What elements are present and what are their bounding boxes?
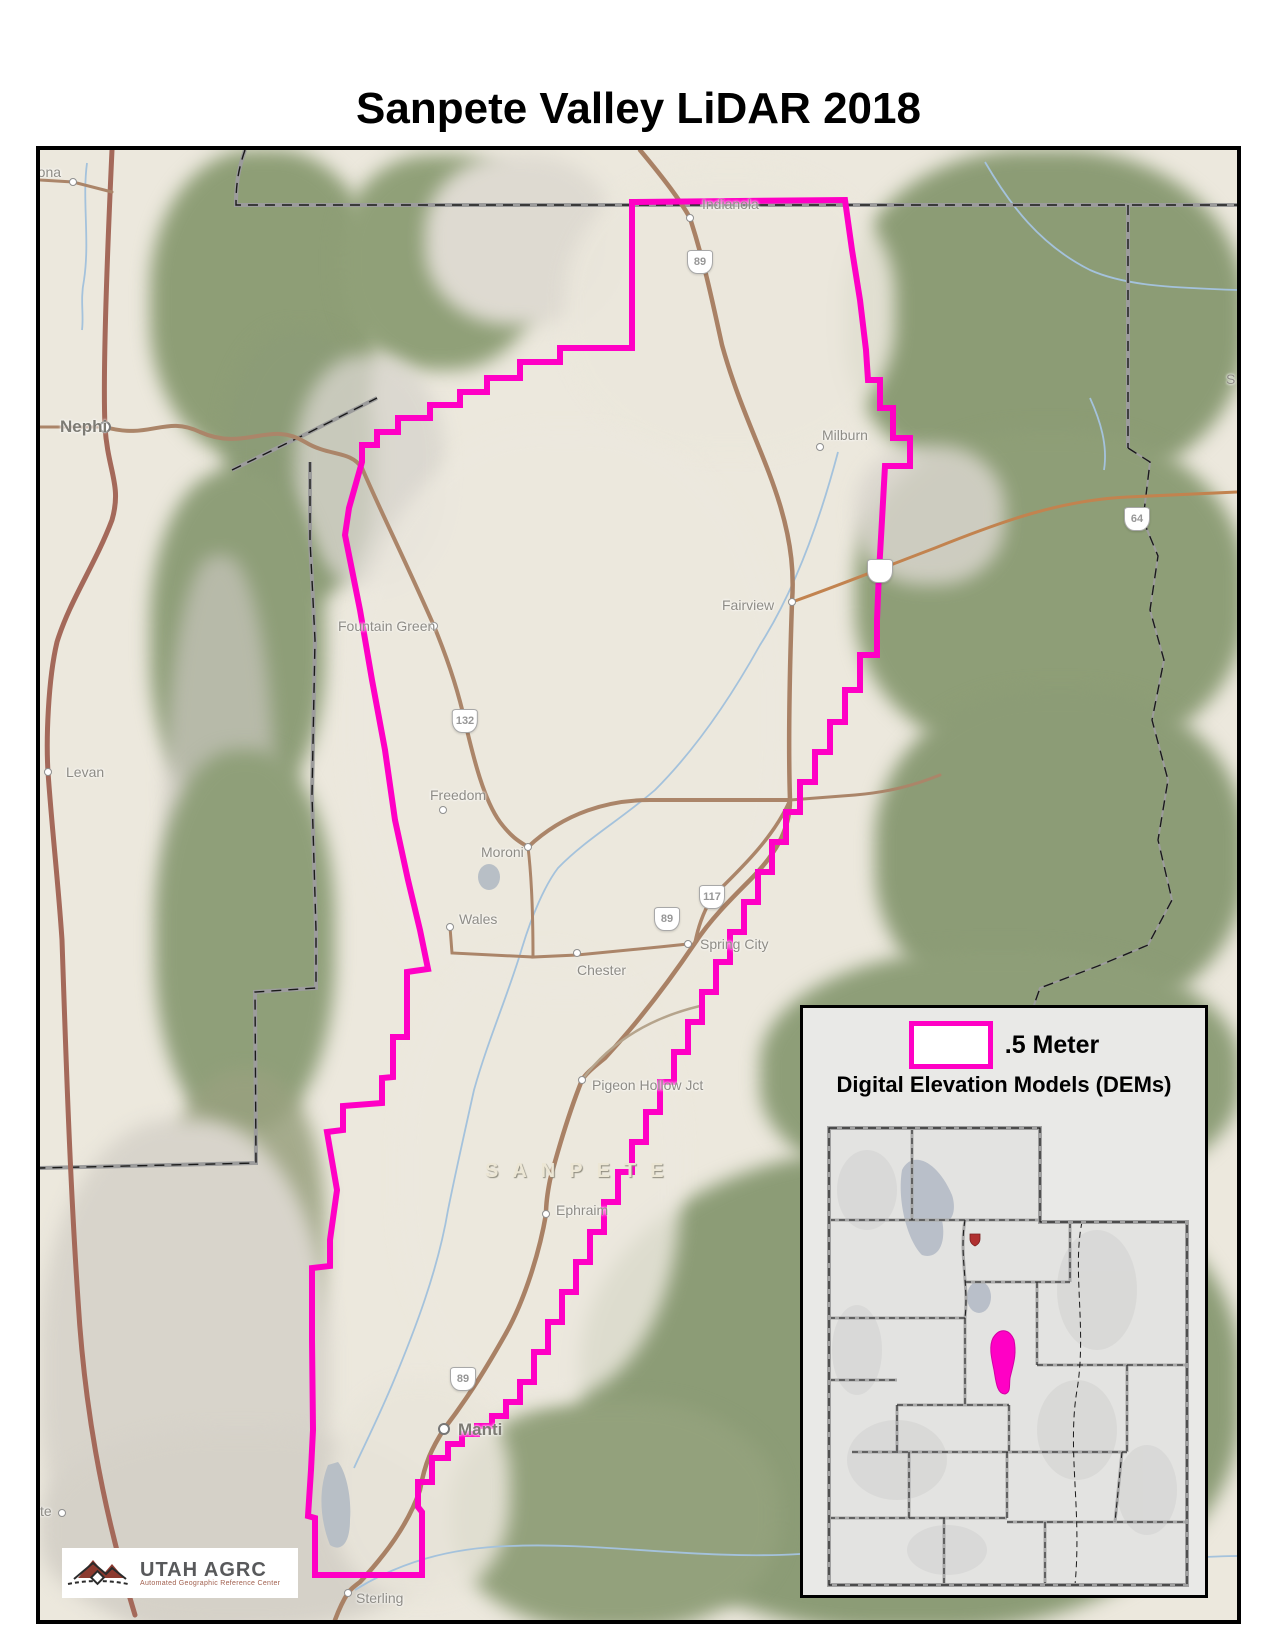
town-label: Mona: [40, 164, 61, 180]
town-dot: [438, 1423, 450, 1435]
town-dot: [816, 443, 824, 451]
route-shield-89: 89: [687, 250, 713, 274]
legend-row: .5 Meter: [803, 1022, 1205, 1068]
logo-title: UTAH AGRC: [140, 1560, 280, 1580]
town-dot: [788, 598, 796, 606]
town-label: Fountain Green: [338, 618, 435, 634]
county-name-label: SANPETE: [485, 1160, 677, 1183]
legend-subtitle: Digital Elevation Models (DEMs): [803, 1072, 1205, 1098]
town-dot: [684, 940, 692, 948]
town-label: Levan: [66, 764, 104, 780]
town-label: Milburn: [822, 427, 868, 443]
route-shield-132: 132: [452, 709, 478, 733]
legend-swatch-label: .5 Meter: [1005, 1031, 1099, 1060]
town-dot: [44, 768, 52, 776]
town-label: Ephraim: [556, 1202, 608, 1218]
town-label: Freedom: [430, 787, 486, 803]
utah-agrc-mountain-icon: [62, 1553, 134, 1593]
route-shield-117: 117: [699, 885, 725, 909]
town-label: Indianola: [702, 196, 759, 212]
town-dot: [58, 1509, 66, 1517]
agency-logo: UTAH AGRC Automated Geographic Reference…: [62, 1548, 298, 1598]
town-label: Fayette: [40, 1503, 52, 1519]
utah-locator-map: [811, 1104, 1199, 1590]
route-shield-obscured: [867, 559, 893, 583]
town-dot: [69, 178, 77, 186]
town-label: Moroni: [481, 844, 524, 860]
route-shield-89: 89: [654, 907, 680, 931]
town-dot: [344, 1589, 352, 1597]
map-canvas: SANPETE MonaNephiLevanFayetteIndianolaMi…: [40, 150, 1237, 1620]
logo-subtitle: Automated Geographic Reference Center: [140, 1580, 280, 1587]
town-label: Spring City: [700, 936, 768, 952]
town-dot: [686, 214, 694, 222]
route-shield-64: 64: [1124, 507, 1150, 531]
legend-inset-box: .5 Meter Digital Elevation Models (DEMs): [800, 1005, 1208, 1598]
town-dot: [439, 806, 447, 814]
town-dot: [573, 949, 581, 957]
page-title: Sanpete Valley LiDAR 2018: [40, 84, 1237, 134]
town-dot: [524, 843, 532, 851]
town-label: Pigeon Hollow Jct: [592, 1077, 703, 1093]
town-label: Manti: [458, 1420, 502, 1440]
route-shield-89: 89: [450, 1367, 476, 1391]
town-label: Sterling: [356, 1590, 403, 1606]
town-label: Wales: [459, 911, 497, 927]
town-dot: [578, 1076, 586, 1084]
town-label: Nephi: [60, 417, 107, 437]
town-label: Fairview: [722, 597, 774, 613]
town-dot: [446, 923, 454, 931]
town-dot: [542, 1210, 550, 1218]
town-label: Chester: [577, 962, 626, 978]
lidar-extent-swatch: [909, 1021, 993, 1069]
partial-town-label: S: [1226, 371, 1235, 387]
